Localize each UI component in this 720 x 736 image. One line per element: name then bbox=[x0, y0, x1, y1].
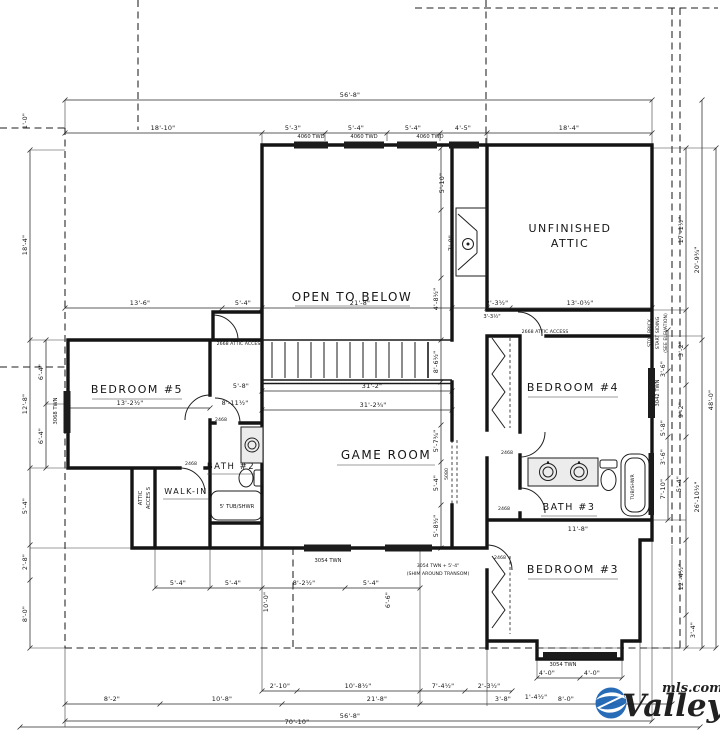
dimension-label: 8'-2½" bbox=[293, 579, 316, 587]
dimension-label: 8'-0" bbox=[558, 695, 574, 703]
dimension-label: 5'-8½" bbox=[432, 515, 440, 538]
door-label: 2468 bbox=[501, 450, 513, 456]
dimension-label: 5'-10" bbox=[438, 173, 446, 193]
dimension-label: 3'-6" bbox=[659, 361, 667, 377]
dimension-label: 5'-8" bbox=[233, 382, 249, 390]
dimension-label: 5'-8" bbox=[659, 420, 667, 436]
tub-label: 5' TUB/SHWR bbox=[220, 504, 255, 510]
dimension-label: 8'-0" bbox=[21, 606, 29, 622]
dimension-label: 7'-0" bbox=[447, 235, 455, 251]
dimension-label: 5'-7¾" bbox=[432, 430, 440, 453]
dimension-label: 3'-8" bbox=[495, 695, 511, 703]
dimension-label: 13'-2½" bbox=[117, 399, 144, 407]
dimension-label: 5'-3" bbox=[285, 124, 301, 132]
door-label: 5080 bbox=[444, 468, 450, 480]
dimension-label: 5'-4" bbox=[405, 124, 421, 132]
dimension-label: 3'-2" bbox=[677, 341, 685, 357]
room-label-bedroom5: BEDROOM #5 bbox=[91, 383, 183, 396]
dimension-labels: 56'-8" 18'-10" 5'-3" 5'-4" 5'-4" 4'-5" 1… bbox=[21, 91, 715, 726]
dimension-label: 3'-3½" bbox=[483, 313, 500, 320]
dimension-ticks bbox=[18, 98, 719, 730]
dimension-label: 5'-4" bbox=[432, 475, 440, 491]
dimension-label: 18'-10" bbox=[151, 124, 176, 132]
dimension-label: 8'-11½" bbox=[222, 399, 249, 407]
dimension-label: 1'-0" bbox=[21, 113, 29, 129]
dimension-label: 5'-4" bbox=[675, 476, 683, 492]
dimension-label: 4'-0" bbox=[584, 669, 600, 677]
room-label-bedroom3: BEDROOM #3 bbox=[527, 563, 619, 576]
dimension-label: 10'-8½" bbox=[345, 682, 372, 690]
dimension-lines bbox=[18, 98, 719, 730]
dimension-label: 31'-2" bbox=[362, 382, 382, 390]
dimension-label: 2'-8" bbox=[21, 554, 29, 570]
attic-access-note: 2668 ATTIC ACCESS bbox=[217, 341, 264, 347]
room-label-unfinished-attic: ATTIC bbox=[551, 237, 589, 250]
room-label-attic-access: ACCES S bbox=[146, 487, 152, 509]
room-labels: OPEN TO BELOW UNFINISHED ATTIC BEDROOM #… bbox=[91, 222, 619, 579]
window-label: 3042 TWN bbox=[655, 379, 661, 406]
dimension-label: 8'-6½" bbox=[432, 351, 440, 374]
transom-note: 3054 TWN + 5'-4" bbox=[417, 563, 459, 569]
dimension-label: 6'-4" bbox=[37, 364, 45, 380]
window-label: 4060 TWD bbox=[416, 134, 443, 140]
dimension-label: 3'-6" bbox=[659, 449, 667, 465]
window-label: 3054 TWN bbox=[314, 558, 341, 564]
dimension-label: 4'-8½" bbox=[432, 288, 440, 311]
door-label: 2468 bbox=[498, 506, 510, 512]
dimension-label: 5'-4" bbox=[348, 124, 364, 132]
dimension-label: 2'-10" bbox=[270, 682, 290, 690]
dimension-label: 56'-8" bbox=[340, 712, 360, 720]
dimension-label: 5'-4" bbox=[21, 498, 29, 514]
door-label: 2468 bbox=[215, 417, 227, 423]
dimension-label: 21'-8" bbox=[367, 695, 387, 703]
dimension-label: 9'-2" bbox=[677, 402, 685, 418]
valleymls-logo-suffix: mls.com bbox=[662, 681, 720, 696]
dimension-label: 13'-6" bbox=[130, 299, 150, 307]
dimension-label: 31'-2¾" bbox=[360, 401, 387, 409]
dimension-label: 5'-4" bbox=[363, 579, 379, 587]
dimension-label: 11'-8" bbox=[568, 525, 588, 533]
siding-note: STOP BRICK bbox=[647, 318, 653, 347]
dimension-label: 5'-4" bbox=[170, 579, 186, 587]
dimension-label: 12'-4½" bbox=[677, 564, 685, 591]
door-label: 2468 bbox=[494, 555, 506, 561]
dimension-label: 10'-0" bbox=[262, 592, 270, 612]
window-label: 3068 TWN bbox=[53, 397, 59, 424]
valleymls-logo: Valley mls.com bbox=[596, 681, 720, 724]
dimension-label: 13'-0½" bbox=[567, 299, 594, 307]
dimension-label: 2'-3½" bbox=[486, 299, 509, 307]
dimension-label: 21'-8" bbox=[350, 299, 370, 307]
window-label: 4060 TWD bbox=[350, 134, 377, 140]
room-label-unfinished-attic: UNFINISHED bbox=[529, 222, 612, 235]
dimension-label: 4'-5" bbox=[455, 124, 471, 132]
dimension-label: 7'-4½" bbox=[432, 682, 455, 690]
dimension-label: 70'-10" bbox=[285, 718, 310, 726]
siding-note: START SIDING bbox=[655, 316, 661, 349]
dimension-label: 2'-3½" bbox=[478, 682, 501, 690]
dimension-label: 10'-8" bbox=[212, 695, 232, 703]
dimension-label: 56'-8" bbox=[340, 91, 360, 99]
room-label-attic-access: ATTIC bbox=[138, 490, 144, 505]
dimension-label: 6'-4" bbox=[37, 428, 45, 444]
dimension-label: 5'-4" bbox=[225, 579, 241, 587]
room-label-bath3: BATH #3 bbox=[543, 502, 596, 513]
staircase bbox=[262, 340, 452, 384]
second-floor-plan-drawing: OPEN TO BELOW UNFINISHED ATTIC BEDROOM #… bbox=[0, 0, 720, 736]
dimension-label: 18'-4" bbox=[559, 124, 579, 132]
window-label: 3054 TWN bbox=[549, 662, 576, 668]
dimension-label: 7'-10" bbox=[659, 479, 667, 499]
dimension-label: 20'-9¾" bbox=[693, 247, 701, 274]
dimension-label: 4'-0" bbox=[539, 669, 555, 677]
chimney-chase bbox=[456, 208, 486, 276]
transom-note: (SHIM AROUND TRANSOM) bbox=[407, 571, 470, 577]
dimension-label: 48'-0" bbox=[707, 390, 715, 410]
siding-note: (SEE ELEVATION) bbox=[663, 313, 669, 353]
tub-label: TUB/SHWR bbox=[630, 474, 636, 501]
dimension-label: 5'-4" bbox=[235, 299, 251, 307]
dimension-label: 1'-4½" bbox=[525, 693, 548, 701]
door-label: 2468 bbox=[185, 461, 197, 467]
attic-access-note: 2668 ATTIC ACCESS bbox=[522, 329, 569, 335]
bifold-closet-doors bbox=[492, 338, 505, 628]
room-label-bedroom4: BEDROOM #4 bbox=[527, 381, 619, 394]
dimension-label: 6'-6" bbox=[384, 592, 392, 608]
room-label-game-room: GAME ROOM bbox=[341, 448, 431, 462]
dimension-label: 18'-4" bbox=[21, 235, 29, 255]
dimension-label: 8'-2" bbox=[104, 695, 120, 703]
floorplan-sheet: OPEN TO BELOW UNFINISHED ATTIC BEDROOM #… bbox=[0, 0, 720, 736]
room-label-walk-in: WALK-IN bbox=[164, 487, 208, 496]
dimension-label: 3'-4" bbox=[689, 622, 697, 638]
dimension-label: 12'-8" bbox=[21, 394, 29, 414]
room-label-bath2: BATH #2 bbox=[207, 462, 255, 472]
room-label-underlines bbox=[92, 306, 618, 579]
dimension-label: 26'-10½" bbox=[693, 481, 701, 512]
window-label: 4060 TWD bbox=[297, 134, 324, 140]
dimension-label: 17'-1½" bbox=[677, 217, 685, 244]
